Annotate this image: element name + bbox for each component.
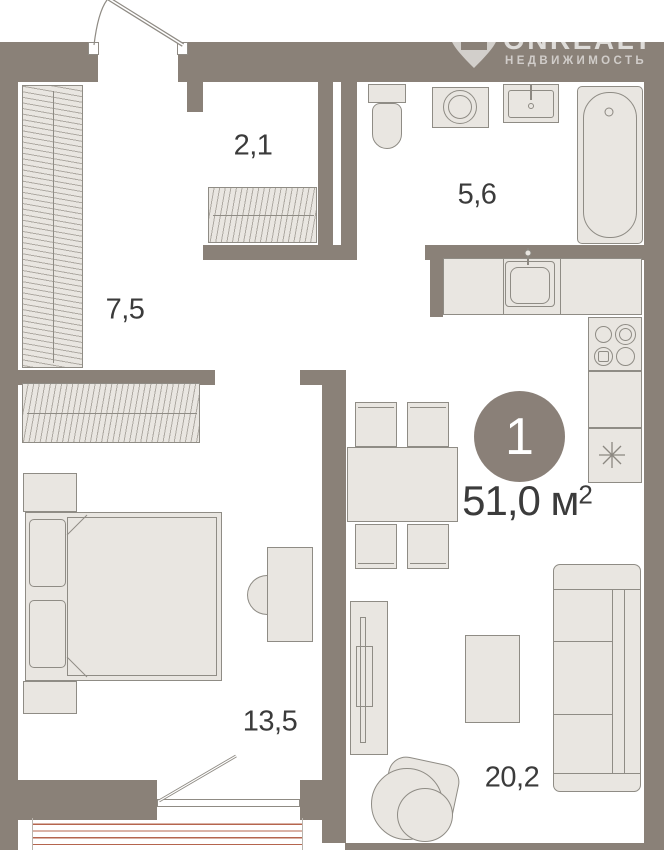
dining-chair [355,524,397,569]
hallway-wardrobe [22,85,83,368]
sofa-cushion-divider [554,641,612,642]
burner-grate [598,351,609,362]
room-label-living: 20,2 [485,762,539,795]
room-label-hallway: 7,5 [106,294,145,327]
wall-bathroom-left [341,82,357,245]
dining-chair [407,524,449,569]
room-label-bedroom: 13,5 [243,706,297,739]
wall-closet-bottom [203,245,357,260]
hanger-rail [27,413,197,414]
nightstand [23,473,77,512]
room-label-closet: 2,1 [234,130,273,163]
floor-plan: ONREALT НЕДВИЖИМОСТЬ 2,1 5,6 7,5 13,5 20… [0,0,664,850]
wall-bedroom-bottom-left [18,780,157,820]
watermark-brand: ONREALT [503,24,654,56]
bathroom-sink-basin [508,90,554,118]
wall-left-outer [0,42,18,850]
entry-door-icon [94,0,183,45]
coffee-table [465,635,520,723]
entry-door-jamb-right [177,42,188,55]
rooms-count-badge: 1 [474,391,565,482]
stove [588,317,642,371]
chair-back-line [410,407,446,408]
wall-bedroom-bottom-right [300,780,346,820]
kitchen-counter-side [588,371,642,428]
burner [619,328,632,341]
wall-right-outer [644,42,664,850]
burner [595,326,612,343]
bathtub-inner [583,92,637,238]
balcony-door-icon [159,756,236,801]
chair-back-line [358,407,394,408]
pillow [29,600,66,668]
kitchen-sink-basin [510,267,550,304]
desk-chair [247,575,267,615]
wall-central-stub-top [300,370,322,385]
toilet-bowl [372,103,402,149]
sofa-back-line [612,589,613,774]
desk [267,547,313,642]
counter-divider [560,259,561,314]
sofa [553,564,641,792]
burner [616,347,635,366]
refrigerator [588,428,642,483]
area-value: 51,0 [462,477,540,524]
dining-chair [355,402,397,447]
chair-back-line [410,563,446,564]
area-unit: м [551,477,579,524]
total-area-label: 51,0 м2 [430,477,625,525]
dining-chair [407,402,449,447]
closet-hanger-rack [208,187,317,243]
watermark-subtitle: НЕДВИЖИМОСТЬ [505,55,647,67]
area-sup: 2 [578,479,592,509]
wall-kitchen-stub [430,258,443,317]
wall-central [322,370,346,843]
counter-divider [503,259,504,314]
wall-closet-right [318,82,333,260]
balcony-door-threshold [157,799,300,807]
armchair [371,752,463,846]
room-label-balcony: 3,6 [157,846,196,850]
washer-drum-inner [448,95,472,119]
bedroom-wardrobe [22,383,200,443]
room-label-bathroom: 5,6 [458,179,497,212]
armchair-cushion [397,788,453,842]
toilet-tank [368,84,406,103]
hanger-rail [53,91,54,363]
hanger-rail [213,215,314,216]
sofa-armrest-line [554,589,640,590]
entry-door-jamb-left [88,42,99,55]
nightstand [23,681,77,714]
sofa-armrest-line [554,773,640,774]
tv-box [356,646,373,707]
rooms-count: 1 [505,407,534,467]
chair-back-line [358,563,394,564]
sofa-cushion-divider [554,714,612,715]
wall-entry-stub [187,82,203,112]
mattress [67,517,217,676]
pillow [29,519,66,587]
sofa-back-line [624,589,625,774]
